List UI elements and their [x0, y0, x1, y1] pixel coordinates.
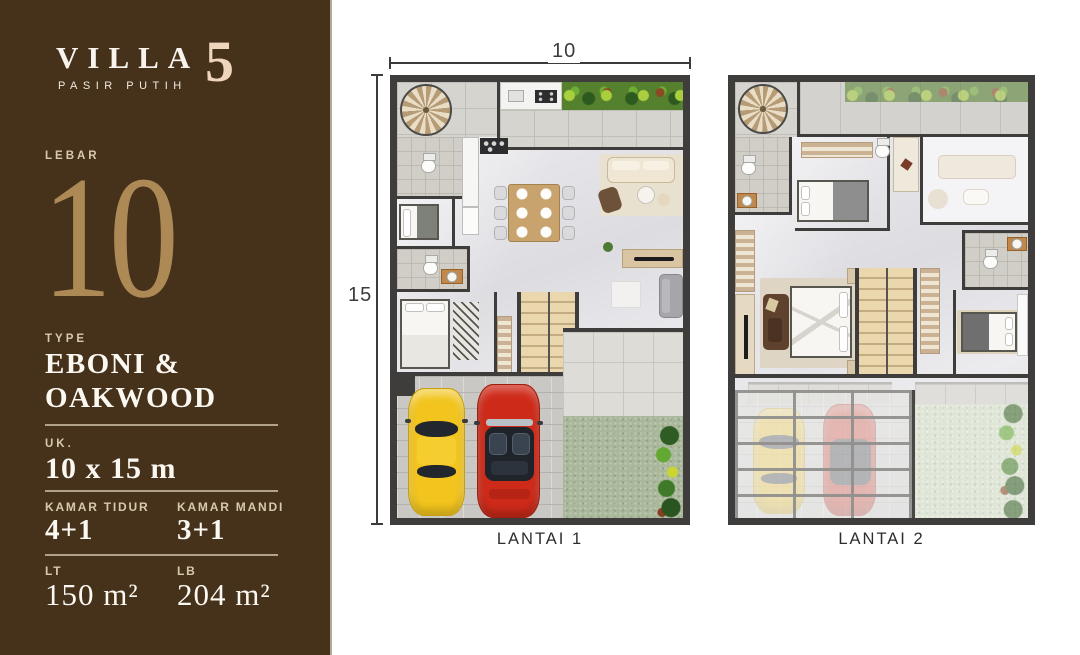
dimension-tick [371, 523, 383, 525]
pillow [1005, 317, 1013, 330]
sink-counter [441, 269, 463, 284]
bathroom-1 [397, 137, 467, 199]
sofa-gray [659, 274, 683, 318]
brand-title: VILLA [56, 40, 199, 76]
lebar-value-wrap: 10 [42, 162, 209, 312]
desk [1017, 294, 1028, 356]
pillow [1005, 333, 1013, 346]
armchair-faded [928, 189, 948, 209]
tv-cabinet [735, 294, 755, 378]
plan1-label: LANTAI 1 [390, 530, 690, 549]
bedroom-1 [397, 292, 497, 375]
kitchen-counter [500, 82, 562, 110]
kamar-mandi-label: KAMAR MANDI [177, 500, 284, 514]
divider [45, 554, 278, 556]
pillow [801, 186, 810, 200]
pillow [801, 202, 810, 216]
blanket [963, 314, 989, 350]
floorplan-lantai-1 [390, 75, 690, 525]
toilet [741, 161, 756, 175]
roof-trellis-grid [735, 390, 915, 518]
bedroom2-bed [797, 180, 869, 222]
brand-subtitle: PASIR PUTIH [58, 80, 187, 92]
walkway-tiles [500, 110, 683, 150]
car-mirror [405, 419, 411, 423]
dining-chairs-left [494, 186, 507, 240]
divider [45, 490, 278, 492]
blanket [402, 335, 448, 367]
bathroom-left [735, 137, 792, 215]
sofa-cushion [662, 279, 670, 313]
rear-window [417, 465, 456, 478]
dimension-tick [389, 57, 391, 69]
pillow [426, 303, 445, 312]
type-label: TYPE [45, 333, 87, 345]
garden-strip-below [845, 82, 1028, 102]
car-seat [512, 433, 530, 455]
brochure-canvas: VILLA 5 PASIR PUTIH LEBAR 10 TYPE EBONI … [0, 0, 1080, 655]
divider [45, 424, 278, 426]
stove-main [480, 138, 508, 154]
table-faded [963, 189, 989, 205]
dimension-line-top [390, 62, 690, 64]
plant-bed [653, 426, 683, 518]
sink-counter [737, 193, 757, 208]
open-cabin [485, 427, 534, 481]
car-mirror [462, 419, 468, 423]
sofa-faded [938, 155, 1016, 179]
void-living-room [920, 137, 1028, 225]
pillow [839, 292, 848, 318]
kitchen-counter-side [462, 137, 479, 207]
wardrobe [893, 137, 919, 192]
blanket [417, 206, 437, 238]
spiral-staircase [738, 84, 788, 134]
lb-label: LB [177, 564, 197, 578]
tv-console [622, 249, 683, 268]
garden-strip [562, 82, 683, 112]
car-mirror [474, 421, 480, 425]
stove [535, 90, 557, 103]
plant-bed-below [995, 404, 1028, 518]
toilet [983, 255, 998, 269]
drying-rack [735, 230, 755, 292]
rug-white [611, 281, 641, 308]
windshield-frame [486, 419, 533, 426]
dimension-label-width: 10 [548, 40, 580, 63]
car-seat [489, 433, 507, 455]
bathroom-2 [397, 246, 470, 292]
toilet [421, 159, 436, 173]
dimension-label-height: 15 [344, 284, 376, 307]
blanket [833, 182, 867, 220]
dimension-tick [371, 74, 383, 76]
plan2-label: LANTAI 2 [728, 530, 1035, 549]
hall-runner-rug [920, 268, 940, 354]
wall [953, 290, 956, 378]
side-table [657, 193, 670, 206]
type-line2: OAKWOOD [45, 382, 217, 415]
red-convertible-car [477, 384, 540, 518]
dimension-tick [689, 57, 691, 69]
pillow [405, 303, 424, 312]
plant [603, 242, 613, 252]
lebar-value: 10 [42, 162, 176, 312]
windshield [415, 421, 458, 437]
car-roof [417, 437, 456, 465]
sofa-cream [607, 157, 675, 183]
lt-label: LT [45, 564, 62, 578]
sink-counter [1007, 237, 1027, 251]
cushion [765, 298, 779, 313]
yellow-car [408, 388, 465, 516]
floorplan-lantai-2 [728, 75, 1035, 525]
tv [634, 257, 674, 261]
spiral-staircase [400, 84, 452, 136]
bathroom-right [962, 230, 1028, 290]
lb-value: 204 m² [177, 577, 271, 613]
cushion [768, 318, 782, 342]
canopy-ledge [915, 382, 1028, 404]
wall [735, 374, 1028, 378]
powder-toilet [875, 144, 890, 158]
trunk [489, 489, 530, 499]
zigzag-rug [453, 302, 479, 360]
sofa-cushion [612, 161, 640, 170]
master-brown-sofa [763, 294, 789, 350]
coffee-table [637, 186, 655, 204]
brand-number: 5 [205, 28, 234, 95]
double-bed [400, 299, 450, 369]
uk-label: UK. [45, 438, 74, 450]
wall [795, 228, 890, 231]
kamar-tidur-value: 4+1 [45, 514, 94, 547]
pillow [403, 209, 411, 237]
dimension-line-left [376, 75, 378, 525]
type-line1: EBONI & [45, 348, 180, 381]
bedroom2-rug [801, 142, 873, 158]
fridge [462, 207, 479, 235]
decor-item [900, 158, 913, 171]
lt-value: 150 m² [45, 577, 139, 613]
single-bed [399, 204, 439, 240]
sofa-cushion [643, 161, 669, 170]
toilet [423, 261, 438, 275]
sidebar: VILLA 5 PASIR PUTIH LEBAR 10 TYPE EBONI … [0, 0, 332, 655]
uk-value: 10 x 15 m [45, 452, 177, 486]
car-mirror [537, 421, 543, 425]
stairs-down [855, 268, 917, 378]
dining-chairs-right [562, 186, 575, 240]
wall-stub [397, 376, 415, 396]
kamar-tidur-label: KAMAR TIDUR [45, 500, 149, 514]
tv [744, 315, 748, 359]
sink [508, 90, 524, 102]
kamar-mandi-value: 3+1 [177, 514, 226, 547]
dining-table [508, 184, 560, 242]
bedroom3-bed [961, 312, 1017, 352]
rear-seat [491, 461, 528, 475]
master-bed [790, 286, 852, 358]
pillow [839, 326, 848, 352]
maid-room [397, 199, 455, 246]
terrace-tiles [563, 332, 683, 416]
hall-runner-rug [497, 316, 512, 374]
